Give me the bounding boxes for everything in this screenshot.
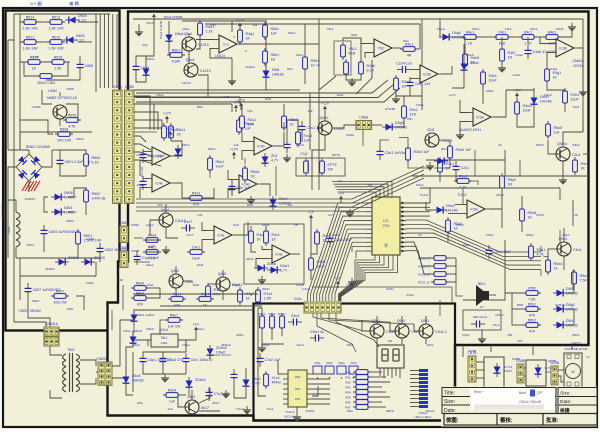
svg-text:1uF: 1uF [223, 95, 228, 99]
svg-text:+1V: +1V [327, 213, 334, 217]
svg-text:Q9u0: Q9u0 [320, 116, 329, 120]
svg-text:R611: R611 [26, 35, 34, 39]
svg-text:R5f2: R5f2 [517, 303, 524, 307]
svg-text:10uF: 10uF [572, 105, 579, 109]
svg-text:TL0u2: TL0u2 [420, 193, 429, 197]
svg-text:5.1K: 5.1K [92, 161, 100, 165]
svg-text:R605: R605 [68, 113, 77, 117]
svg-text:+17V: +17V [448, 93, 456, 97]
svg-text:BELL: BELL [478, 282, 486, 286]
svg-text:C6u0: C6u0 [470, 61, 479, 65]
svg-text:R5y0: R5y0 [496, 193, 504, 197]
svg-text:10uF: 10uF [571, 98, 580, 102]
svg-text:CN601A: CN601A [45, 322, 59, 326]
svg-text:IC1: IC1 [383, 219, 388, 223]
svg-text:CN602: CN602 [96, 357, 107, 361]
svg-text:R6u1: R6u1 [216, 160, 225, 164]
svg-text:24V7V: 24V7V [571, 341, 581, 345]
svg-text:D6u0: D6u0 [132, 374, 141, 378]
svg-text:R4c1: R4c1 [530, 27, 538, 31]
svg-text:R4u0: R4u0 [296, 143, 304, 147]
svg-text:D603: D603 [76, 34, 85, 38]
svg-text:1K: 1K [203, 303, 208, 307]
svg-text:CN5A: CN5A [131, 223, 140, 227]
svg-text:47K: 47K [137, 302, 144, 306]
svg-text:CPU: CPU [383, 224, 391, 228]
svg-text:1N4007: 1N4007 [25, 197, 36, 201]
svg-text:1.5K: 1.5K [33, 55, 40, 59]
svg-text:1K0-1/W: 1K0-1/W [57, 138, 72, 142]
svg-text:C6q4: C6q4 [182, 343, 190, 347]
svg-text:D5h1: D5h1 [566, 319, 575, 323]
svg-text:SW1: SW1 [314, 361, 321, 365]
svg-text:Title:: Title: [444, 391, 455, 397]
svg-text:1B: 1B [271, 58, 276, 62]
svg-text:1.6SM: 1.6SM [47, 89, 57, 93]
svg-text:C4u6: C4u6 [302, 287, 310, 291]
svg-text:Q4x2: Q4x2 [171, 269, 180, 273]
svg-text:SW2: SW2 [326, 361, 333, 365]
svg-text:C85u4 C85u4B: C85u4 C85u4B [519, 400, 541, 404]
svg-text:C2u1 1uF: C2u1 1uF [307, 126, 324, 130]
svg-text:D6f1: D6f1 [272, 68, 280, 72]
svg-text:1R: 1R [402, 85, 407, 89]
svg-text:D6u4: D6u4 [437, 27, 445, 31]
svg-text:R4e5: R4e5 [466, 53, 474, 57]
svg-text:Q4u1: Q4u1 [146, 223, 154, 227]
svg-text:D5f1: D5f1 [566, 287, 574, 291]
svg-text:C9u4: C9u4 [291, 314, 300, 318]
svg-text:7.5K: 7.5K [580, 279, 588, 283]
svg-text:+17V: +17V [236, 19, 245, 23]
svg-text:D9u1 UH6u1: D9u1 UH6u1 [137, 313, 155, 317]
svg-text:R4u1: R4u1 [466, 30, 475, 34]
svg-text:R5h2: R5h2 [528, 318, 537, 322]
svg-text:R4g1: R4g1 [553, 71, 562, 75]
svg-text:1uF: 1uF [169, 399, 176, 403]
svg-text:Q5n1: Q5n1 [562, 233, 570, 237]
svg-text:10uF: 10uF [196, 263, 203, 267]
svg-text:UH61B: UH61B [272, 73, 284, 77]
svg-text:C4a0 47uF/50V: C4a0 47uF/50V [533, 50, 559, 54]
svg-text:C2u4 1u3: C2u4 1u3 [396, 62, 412, 66]
svg-text:EPT5: EPT5 [328, 163, 337, 167]
svg-text:1.6K-1/W: 1.6K-1/W [23, 46, 39, 50]
svg-text:CN1u: CN1u [406, 293, 414, 297]
svg-text:R5v0: R5v0 [581, 162, 589, 166]
svg-text:D604: D604 [78, 14, 87, 18]
svg-text:ICu: ICu [223, 43, 228, 47]
svg-text:R4k1: R4k1 [486, 89, 494, 93]
svg-text:Y6L1: Y6L1 [326, 27, 334, 31]
svg-text:1uF: 1uF [367, 183, 372, 187]
svg-text:47K: 47K [214, 293, 221, 297]
svg-text:D4w1: D4w1 [280, 264, 289, 268]
svg-text:10uF: 10uF [523, 109, 532, 113]
svg-text:R5z6: R5z6 [536, 213, 544, 217]
svg-text:R6u: R6u [210, 23, 216, 27]
svg-text:R6m: R6m [197, 105, 204, 109]
svg-text:R6q4: R6q4 [136, 281, 145, 285]
svg-text:R616: R616 [54, 55, 63, 59]
svg-text:IC4k: IC4k [156, 182, 163, 186]
svg-text:1K: 1K [32, 66, 37, 70]
svg-text:檢圖:: 檢圖: [446, 416, 459, 424]
svg-text:8017: 8017 [201, 406, 209, 410]
svg-text:1uF: 1uF [307, 109, 312, 113]
svg-text:IC4c: IC4c [233, 223, 240, 227]
svg-text:4.7K: 4.7K [537, 253, 545, 257]
svg-text:R9v4: R9v4 [269, 312, 276, 316]
svg-text:ZD602: ZD602 [45, 267, 55, 271]
svg-text:1K: 1K [246, 37, 251, 41]
svg-text:UH14B: UH14B [452, 36, 464, 40]
svg-text:▼: ▼ [340, 376, 343, 380]
svg-text:D5h1: D5h1 [572, 333, 580, 337]
svg-text:D6p0: D6p0 [146, 327, 154, 331]
svg-text:UH61B: UH61B [132, 379, 144, 383]
svg-text:1.6SM: 1.6SM [32, 105, 41, 109]
svg-text:D6u1 UH64B: D6u1 UH64B [164, 15, 182, 19]
svg-text:R6u: R6u [137, 401, 143, 405]
svg-text:24V7V-EB-uPTuR: 24V7V-EB-uPTuR [564, 347, 587, 351]
svg-text:1/4W-1B: 1/4W-1B [92, 197, 107, 201]
svg-text:R4f1: R4f1 [193, 283, 200, 287]
svg-text:Q6u4: Q6u4 [186, 58, 195, 62]
svg-text:D6f1: D6f1 [265, 97, 272, 101]
svg-text:R4e1: R4e1 [146, 263, 154, 267]
svg-text:+1V: +1V [193, 323, 200, 327]
svg-text:ZD4u: ZD4u [246, 257, 254, 261]
svg-text:R2w1: R2w1 [290, 118, 299, 122]
svg-text:8.8: 8.8 [388, 339, 393, 343]
svg-text:R95: R95 [345, 396, 351, 400]
svg-text:1K: 1K [177, 133, 182, 137]
svg-text:D5g0: D5g0 [566, 303, 575, 307]
svg-text:D7u1 UH6u01: D7u1 UH6u01 [123, 329, 142, 333]
svg-text:Q6t0: Q6t0 [187, 395, 195, 399]
svg-text:IC3A: IC3A [476, 116, 484, 120]
svg-text:1.6K-1/W: 1.6K-1/W [49, 46, 65, 50]
svg-text:4.7Y: 4.7Y [271, 159, 279, 163]
svg-text:Y4b1: Y4b1 [498, 30, 506, 34]
svg-text:D606: D606 [64, 191, 73, 195]
svg-text:+17V: +17V [230, 148, 239, 152]
svg-text:10uF: 10uF [317, 265, 326, 269]
svg-text:C2u1: C2u1 [461, 166, 470, 170]
svg-text:CN5B: CN5B [125, 85, 135, 89]
svg-text:R5u: R5u [441, 147, 447, 151]
svg-text:TC5u1: TC5u1 [305, 409, 315, 413]
svg-text:R91: R91 [345, 376, 351, 380]
svg-text:R4f4: R4f4 [508, 51, 516, 55]
svg-text:47K: 47K [529, 329, 536, 333]
svg-text:4MHz: 4MHz [386, 409, 395, 413]
svg-text:R4u0: R4u0 [304, 134, 313, 138]
svg-text:1R: 1R [508, 183, 513, 187]
svg-text:D6u2: D6u2 [252, 377, 261, 381]
svg-text:C604: C604 [26, 243, 34, 247]
svg-text:4 1/Y: 4 1/Y [78, 19, 87, 23]
svg-text:R4q1: R4q1 [246, 32, 255, 36]
svg-text:批准:: 批准: [546, 416, 559, 424]
svg-text:IC2B: IC2B [423, 73, 431, 77]
svg-text:R5z6: R5z6 [528, 211, 536, 215]
svg-text:R3u6 1uF: R3u6 1uF [456, 148, 473, 152]
svg-text:R604: R604 [76, 137, 84, 141]
svg-text:C6u1 47u/1V: C6u1 47u/1V [213, 353, 231, 357]
svg-text:1K: 1K [554, 267, 559, 271]
svg-text:C9w1 4u: C9w1 4u [310, 330, 324, 334]
svg-text:R4g1: R4g1 [550, 67, 558, 71]
svg-text:R1u4: R1u4 [264, 292, 273, 296]
svg-text:R4x1: R4x1 [272, 233, 280, 237]
svg-text:CN7B: CN7B [468, 349, 476, 353]
svg-text:TL0u2: TL0u2 [457, 193, 466, 197]
svg-text:R6d1: R6d1 [271, 27, 280, 31]
svg-text:TDC: TDC [378, 47, 386, 51]
svg-text:Q6u1: Q6u1 [182, 27, 190, 31]
svg-text:Q9b1: Q9b1 [397, 319, 406, 323]
svg-text:Q9c1: Q9c1 [426, 343, 434, 347]
svg-text:UH61B: UH61B [566, 292, 578, 296]
svg-text:X1u1: X1u1 [266, 407, 274, 411]
svg-text:+17V: +17V [163, 112, 172, 116]
svg-text:8017: 8017 [213, 401, 220, 405]
svg-text:U-7Y: U-7Y [252, 382, 261, 386]
svg-text:C7a2 1uF: C7a2 1uF [265, 358, 282, 362]
svg-text:C6x: C6x [247, 109, 253, 113]
svg-text:Q9c1: Q9c1 [421, 319, 430, 323]
svg-text:編 輯: 編 輯 [69, 0, 79, 7]
svg-text:R9u: R9u [287, 67, 293, 71]
svg-text:VSS: VSS [295, 397, 301, 401]
svg-text:Ⓓ: Ⓓ [384, 242, 389, 249]
svg-text:1K: 1K [553, 76, 558, 80]
svg-text:R6u1: R6u1 [170, 313, 179, 317]
svg-text:1K: 1K [251, 175, 256, 179]
svg-text:Y4b1: Y4b1 [504, 27, 512, 31]
svg-text:+17V: +17V [513, 89, 522, 93]
svg-text:47K: 47K [174, 303, 181, 307]
svg-text:R9e1: R9e1 [296, 53, 304, 57]
svg-text:R2u1: R2u1 [416, 183, 424, 187]
svg-text:C5u1: C5u1 [486, 233, 494, 237]
svg-text:R211 1K: R211 1K [418, 265, 429, 269]
svg-text:SW1: SW1 [347, 343, 354, 347]
svg-text:C1213: C1213 [200, 69, 211, 73]
svg-text:IC4e: IC4e [275, 253, 282, 257]
svg-text:R6w1: R6w1 [251, 170, 260, 174]
svg-text:R9u1: R9u1 [288, 31, 296, 35]
svg-text:1K: 1K [468, 41, 473, 45]
svg-text:10W: 10W [67, 307, 73, 311]
svg-text:D6u1 UH64B: D6u1 UH64B [159, 21, 163, 39]
svg-text:R4h4: R4h4 [571, 93, 580, 97]
svg-text:CN6A: CN6A [346, 133, 355, 137]
svg-text:u4: u4 [586, 355, 590, 359]
svg-text:D4n0: D4n0 [544, 93, 552, 97]
svg-text:C7u2: C7u2 [236, 407, 244, 411]
svg-text:R3x: R3x [407, 117, 413, 121]
svg-text:CN1u: CN1u [386, 287, 394, 291]
svg-text:SW3: SW3 [338, 361, 345, 365]
svg-text:1.5R: 1.5R [264, 297, 272, 301]
svg-text:R93: R93 [345, 386, 351, 390]
svg-text:1K: 1K [170, 133, 175, 137]
svg-text:Size:: Size: [444, 399, 455, 405]
svg-text:CN8B: CN8B [512, 357, 520, 361]
svg-text:Bord: Bord [519, 391, 526, 395]
svg-text:7.5K: 7.5K [528, 297, 536, 301]
svg-text:IC5a: IC5a [470, 208, 477, 212]
svg-text:CN5A: CN5A [113, 85, 123, 89]
svg-text:R4f1: R4f1 [214, 288, 222, 292]
svg-text:R90: R90 [345, 371, 351, 375]
svg-text:10uF: 10uF [462, 243, 469, 247]
svg-text:QN1: QN1 [427, 128, 434, 132]
svg-text:R5u4: R5u4 [580, 274, 589, 278]
svg-text:R5u5: R5u5 [554, 126, 563, 130]
svg-text:C6w0: C6w0 [504, 369, 512, 373]
svg-text:R4c1: R4c1 [524, 30, 532, 34]
svg-text:1.5K: 1.5K [54, 66, 62, 70]
svg-text:R607: R607 [32, 299, 40, 303]
svg-text:C604 1uF/50VDC: C604 1uF/50VDC [49, 230, 78, 234]
svg-text:CN5A: CN5A [119, 221, 129, 225]
svg-text:1K: 1K [246, 297, 251, 301]
svg-text:R9u: R9u [347, 409, 353, 413]
svg-text:CN9B: CN9B [548, 359, 556, 363]
svg-text:10uF: 10uF [192, 256, 201, 260]
svg-text:R6e1: R6e1 [271, 53, 280, 57]
svg-text:C9u1.2: C9u1.2 [435, 330, 447, 334]
svg-text:R94: R94 [345, 391, 351, 395]
svg-text:1.1K: 1.1K [206, 30, 214, 34]
svg-text:C4a0: C4a0 [515, 53, 523, 57]
svg-text:R6s4: R6s4 [168, 388, 176, 392]
svg-text:TC5u1: TC5u1 [285, 410, 294, 414]
svg-text:ZD6u0: ZD6u0 [221, 343, 231, 347]
svg-text:MIN-C1u2: MIN-C1u2 [473, 315, 487, 319]
svg-text:47K: 47K [517, 339, 523, 343]
svg-text:10uF: 10uF [216, 165, 225, 169]
svg-text:R2u1: R2u1 [248, 118, 257, 122]
svg-text:C1y6 10uF: C1y6 10uF [142, 256, 160, 260]
svg-text:1K: 1K [311, 64, 316, 68]
svg-text:IC6u1: IC6u1 [160, 328, 169, 332]
svg-text:1.7Y: 1.7Y [280, 269, 288, 273]
svg-text:R5g1: R5g1 [528, 302, 537, 306]
svg-text:R5q1: R5q1 [526, 233, 534, 237]
svg-text:CN5B: CN5B [131, 249, 139, 253]
svg-text:GND: GND [161, 341, 169, 345]
svg-text:C5y1: C5y1 [462, 333, 470, 337]
svg-text:UH61B: UH61B [566, 308, 578, 312]
svg-text:1K0: 1K0 [410, 113, 416, 117]
svg-text:D6u1: D6u1 [182, 143, 190, 147]
svg-text:1K: 1K [290, 123, 295, 127]
svg-text:R3x1: R3x1 [416, 103, 424, 107]
svg-text:OSC: OSC [294, 387, 300, 391]
svg-text:R9u1: R9u1 [262, 343, 270, 347]
svg-text:C7y2: C7y2 [300, 152, 308, 156]
svg-text:ZD1: ZD1 [271, 154, 278, 158]
svg-text:MIN-C: MIN-C [496, 313, 506, 317]
svg-text:M: M [572, 370, 575, 374]
svg-text:R4e1: R4e1 [148, 245, 157, 249]
svg-text:R4g7: R4g7 [232, 283, 240, 287]
svg-text:C4x7: C4x7 [186, 233, 194, 237]
svg-text:1N4007: 1N4007 [64, 211, 77, 215]
svg-text:R3u5: R3u5 [459, 174, 468, 178]
svg-text:R9w1: R9w1 [278, 312, 286, 316]
svg-text:C6q4 47u: C6q4 47u [168, 358, 184, 362]
svg-text:C5y1: C5y1 [492, 323, 499, 327]
svg-text:IC4 1/B: IC4 1/B [140, 167, 144, 177]
svg-text:R4d1: R4d1 [548, 30, 557, 34]
svg-text:12V: 12V [151, 10, 158, 14]
svg-text:R5y0: R5y0 [508, 178, 516, 182]
svg-text:R608: R608 [60, 127, 69, 131]
svg-text:C4u1 1u3: C4u1 1u3 [415, 82, 431, 86]
svg-text:D601: D601 [64, 206, 73, 210]
svg-text:10Ω-1W: 10Ω-1W [53, 300, 67, 304]
svg-text:4.7K: 4.7K [68, 124, 76, 128]
svg-text:C4x: C4x [197, 213, 203, 217]
svg-text:1uF: 1uF [167, 407, 172, 411]
svg-text:10uF: 10uF [336, 93, 343, 97]
svg-text:1uF: 1uF [554, 131, 561, 135]
svg-text:IC6u1: IC6u1 [196, 327, 205, 331]
svg-text:R612: R612 [52, 35, 61, 39]
svg-text:Resc···: Resc··· [474, 390, 484, 394]
svg-text:D4g6: D4g6 [452, 31, 461, 35]
svg-text:47K: 47K [157, 203, 163, 207]
svg-text:CN1u: CN1u [294, 297, 302, 301]
svg-text:Q4y0: Q4y0 [218, 272, 227, 276]
svg-text:審核:: 審核: [499, 416, 513, 424]
svg-text:R5w1: R5w1 [554, 262, 563, 266]
svg-text:Y6L1: Y6L1 [349, 47, 357, 51]
svg-text:R602: R602 [66, 219, 74, 223]
svg-text:5KB: 5KB [349, 52, 356, 56]
svg-text:R4s2: R4s2 [192, 191, 200, 195]
svg-text:C6u0SZ LM741: C6u0SZ LM741 [459, 128, 482, 132]
svg-text:1K: 1K [272, 238, 277, 242]
svg-text:4.7K: 4.7K [459, 185, 467, 189]
svg-text:17F: 17F [537, 391, 543, 395]
svg-text:10uF: 10uF [136, 183, 143, 187]
svg-text:R92: R92 [345, 381, 351, 385]
svg-text:1K: 1K [257, 238, 262, 242]
svg-text:C605: C605 [66, 87, 74, 91]
svg-text:T601: T601 [67, 348, 74, 352]
svg-text:UH61B: UH61B [555, 303, 565, 307]
svg-text:C602: C602 [86, 281, 94, 285]
svg-text:10uF: 10uF [146, 283, 153, 287]
svg-text:C9u1: C9u1 [573, 248, 582, 252]
svg-text:R4u6: R4u6 [367, 64, 376, 68]
svg-text:R4u1: R4u1 [472, 27, 480, 31]
svg-text:R5x4: R5x4 [456, 223, 464, 227]
svg-text:+17V: +17V [232, 101, 241, 105]
svg-text:C4x7: C4x7 [184, 220, 192, 224]
svg-text:X1u1: X1u1 [272, 376, 280, 380]
svg-text:+2V: +2V [347, 287, 354, 291]
svg-text:C4u1: C4u1 [192, 245, 201, 249]
svg-text:4R: 4R [407, 53, 412, 57]
